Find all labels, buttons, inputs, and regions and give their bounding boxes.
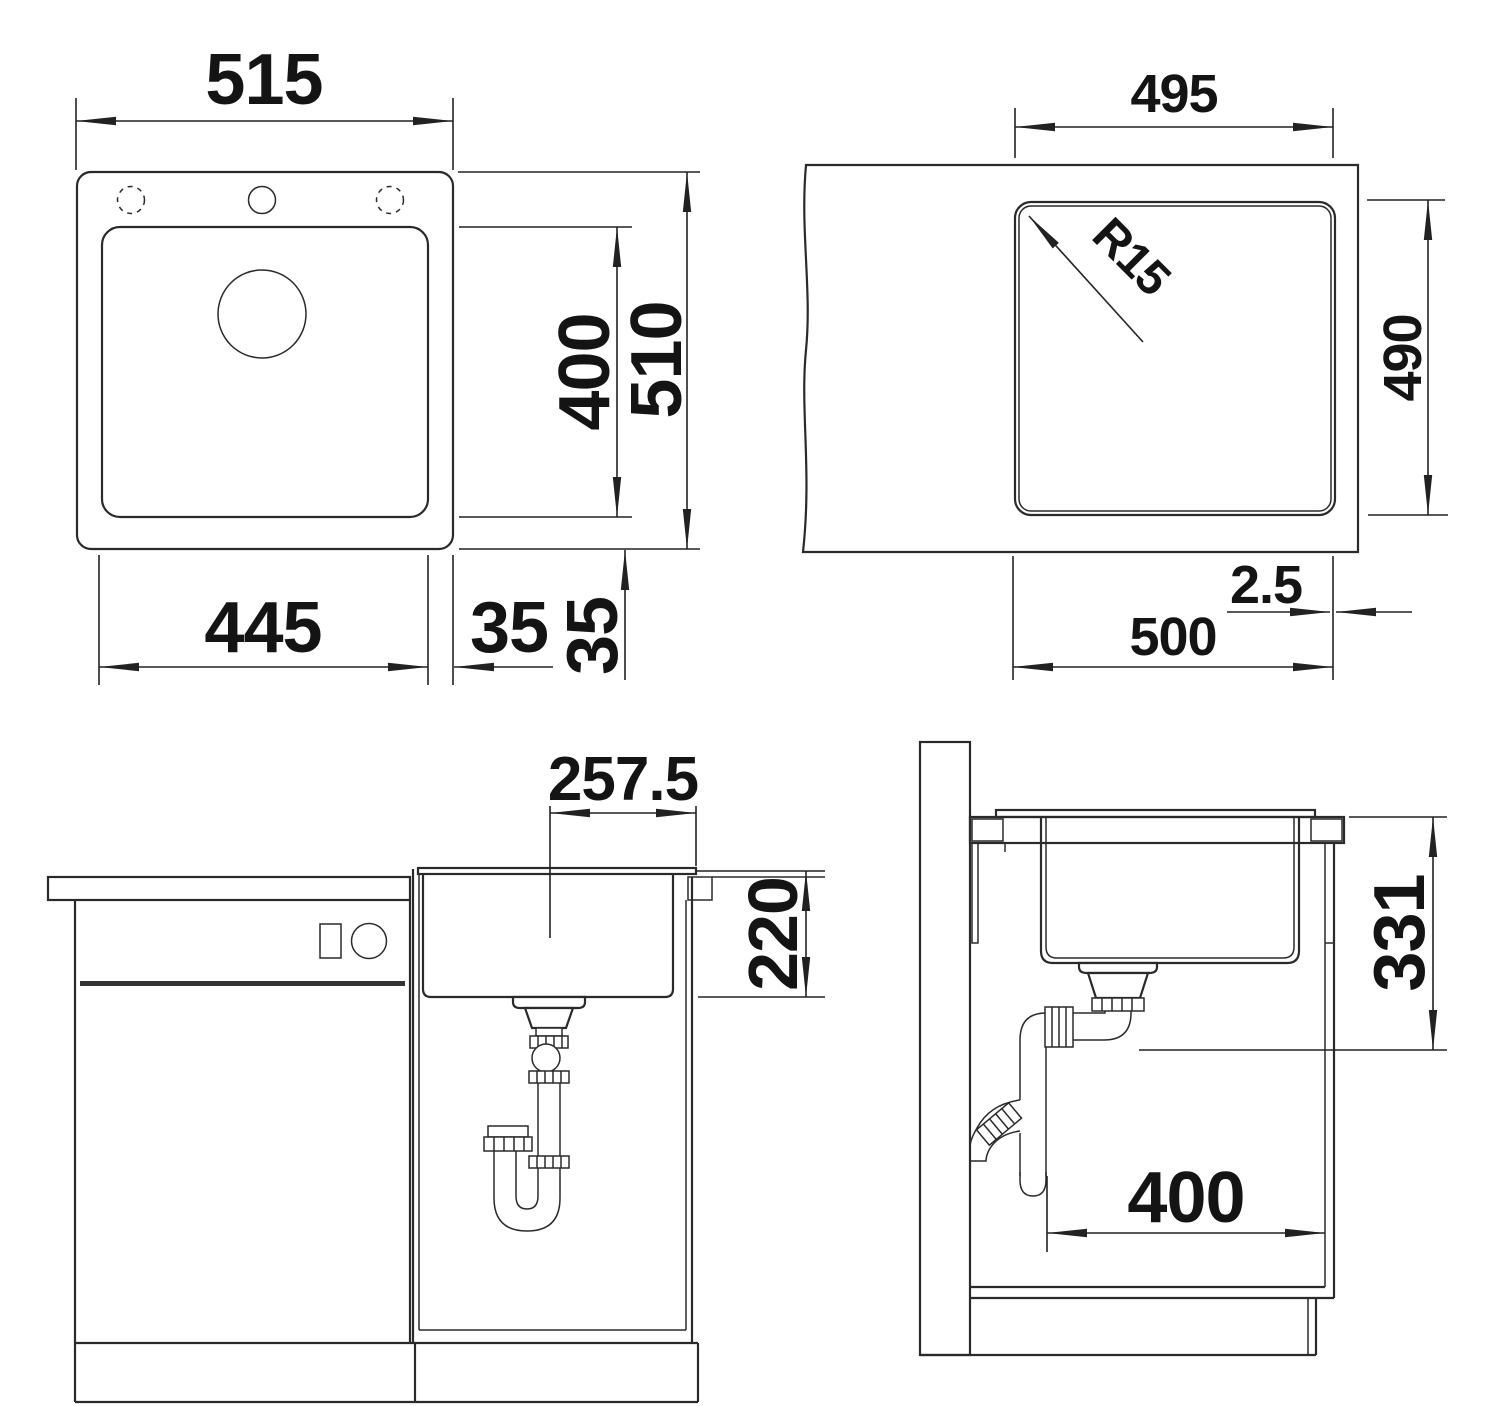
bowl-section-outline (423, 874, 673, 997)
worktop-outline (803, 165, 1358, 552)
dim-445: 445 (99, 555, 453, 685)
figure-top-view: 515 510 400 445 35 35 (0, 0, 760, 710)
nut-body (484, 1137, 532, 1151)
drain-tailpiece (536, 1028, 562, 1036)
drawer-gap-band (80, 981, 405, 986)
drain-flange (513, 997, 585, 1008)
swivel-elbow (532, 1044, 560, 1072)
worktop-hatched-strip (48, 877, 410, 900)
dim-400-clearance-label: 400 (1127, 1158, 1244, 1238)
worktop-section (48, 877, 825, 900)
figure-front-view: 257.5 220 (0, 710, 870, 1406)
dim-220-label: 220 (734, 877, 812, 991)
worktop-outline-group (803, 165, 1358, 552)
dim-radius-r15: R15 (1029, 208, 1180, 342)
dim-257-5-label: 257.5 (548, 745, 698, 814)
dim-2-5: 2.5 (1227, 555, 1412, 680)
dim-490-label: 490 (1373, 314, 1433, 401)
worktop-hatched-block-left (972, 819, 1003, 841)
worktop-hatched-block-right (1311, 819, 1342, 841)
sink-outer-outline (77, 172, 453, 549)
union-nut (484, 1137, 532, 1151)
nut-body (1092, 998, 1144, 1011)
dim-515: 515 (76, 40, 453, 170)
drain-cup (525, 1008, 573, 1028)
technical-drawing-sheet: 515 510 400 445 35 35 (0, 0, 1500, 1406)
union-nut (529, 1071, 569, 1083)
union-nut (529, 1156, 569, 1168)
figure-side-view: 331 400 (870, 710, 1500, 1406)
dim-495-label: 495 (1130, 64, 1217, 124)
dim-257-5: 257.5 (548, 745, 698, 938)
dim-331-label: 331 (1360, 874, 1440, 991)
dim-490: 490 (1367, 200, 1448, 515)
drain-flange (1079, 963, 1157, 973)
union-nut (1092, 998, 1144, 1011)
tap-hole-optional-left (118, 187, 145, 214)
cabinet-section (920, 843, 1334, 1355)
dim-35v-label: 35 (553, 597, 633, 675)
tap-hole-center (249, 187, 276, 214)
cutout-outline-bevel (1019, 206, 1331, 511)
wall-hatched (920, 742, 970, 1355)
bowl-section (1041, 817, 1299, 963)
dim-220: 220 (696, 871, 825, 997)
sink-cabinet (75, 869, 698, 1402)
dim-445-label: 445 (204, 588, 321, 668)
dim-400: 400 (459, 227, 632, 517)
bowl-outer (1041, 817, 1299, 963)
nut-body (529, 1156, 569, 1168)
drain-cup (1088, 973, 1148, 998)
sink-outline-group (77, 172, 453, 549)
dim-331: 331 (1139, 817, 1447, 1050)
union-nut (1045, 1007, 1073, 1047)
dim-400-clearance: 400 (1047, 1158, 1325, 1252)
sink-rim (418, 868, 696, 874)
dishwasher-cabinet (75, 900, 410, 1402)
nut-body (529, 1071, 569, 1083)
dim-515-label: 515 (205, 40, 322, 120)
dim-35h-label: 35 (470, 588, 548, 668)
dim-495: 495 (1015, 64, 1333, 158)
dim-510-label: 510 (617, 301, 697, 418)
sink-rim (996, 810, 1315, 817)
dim-35-right: 35 (454, 588, 553, 668)
worktop-outline (970, 817, 1344, 843)
dim-2-5-label: 2.5 (1230, 555, 1302, 615)
drain-and-trap (484, 997, 585, 1231)
tap-hole-optional-right (377, 187, 404, 214)
trap-outlet-sleeve (488, 1126, 528, 1137)
drain-hole (218, 270, 306, 358)
dim-400-label: 400 (545, 313, 625, 430)
dim-35-bottom: 35 (553, 550, 633, 680)
control-knob (352, 924, 387, 959)
bowl-inner (1046, 817, 1294, 958)
trap-bottom-cap (1020, 1172, 1046, 1196)
worktop-section (970, 810, 1344, 943)
wall-section (920, 742, 970, 1355)
wall-batten (972, 843, 978, 943)
cutout-outline-outer (1015, 202, 1335, 515)
sink-section (418, 868, 696, 997)
figure-cutout-view: R15 495 490 2.5 500 (760, 40, 1500, 710)
dim-500-label: 500 (1129, 607, 1216, 667)
control-rect (320, 924, 341, 958)
